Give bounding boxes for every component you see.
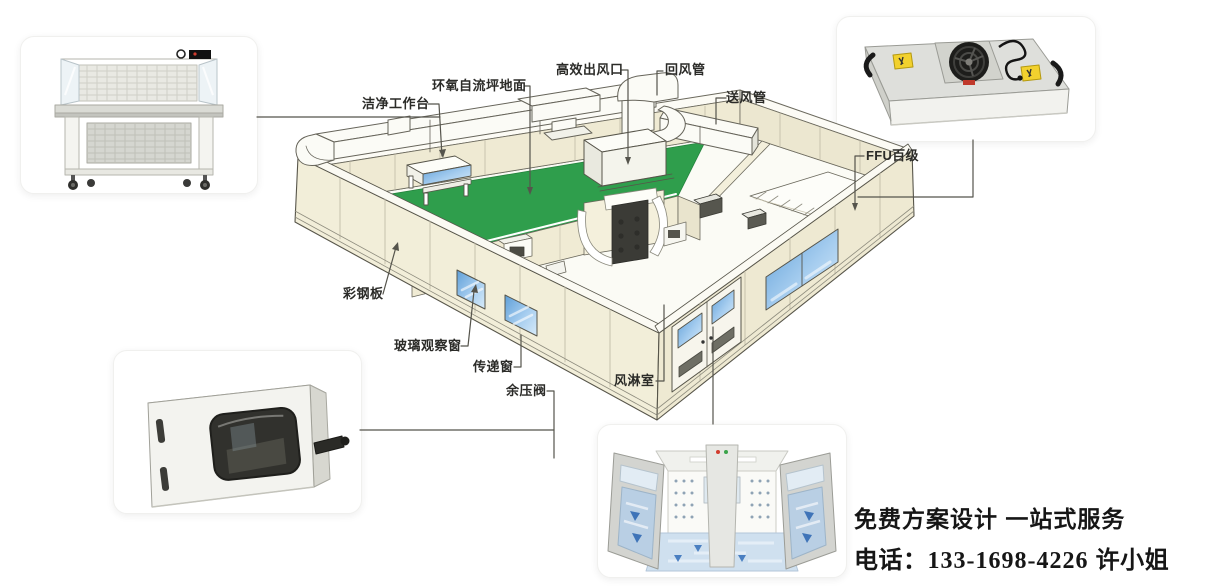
callout-pass-window: 传递窗 [473, 360, 514, 374]
observation-windows [457, 270, 537, 336]
epoxy-green-floor [385, 142, 705, 262]
callout-pressure-valve: 余压阀 [506, 384, 547, 398]
return-duct-elbow [618, 73, 678, 102]
callout-epoxy-floor: 环氧自流坪地面 [432, 79, 527, 93]
leader-hepa-outlet [622, 70, 628, 158]
caster-wheels [68, 175, 210, 190]
air-shower-double-door [672, 277, 741, 392]
callout-ffu-class100: FFU百级 [866, 149, 919, 163]
leader-observation-window [461, 291, 474, 346]
cleanroom-solution-poster: 环氧自流坪地面 洁净工作台 高效出风口 回风管 送风管 FFU百级 彩钢板 玻璃… [0, 0, 1206, 587]
leader-return-duct [657, 71, 663, 95]
pass-box-photo [113, 350, 362, 514]
small-duct-front [532, 95, 600, 122]
leader-steel-panel [383, 247, 396, 294]
phone-number: 133-1698-4226 [928, 548, 1089, 574]
air-shower-room [578, 188, 686, 266]
supply-duct-top [660, 108, 758, 138]
riser-duct [622, 95, 654, 135]
duct-elbow-left [296, 134, 334, 165]
right-door [780, 453, 836, 569]
viewing-window [209, 407, 301, 482]
duct-stub [388, 116, 410, 135]
leader-arrowheads [392, 149, 858, 293]
callout-steel-panel: 彩钢板 [343, 287, 384, 301]
clean-workbench-illustration [21, 37, 257, 193]
contact-person: 许小姐 [1096, 547, 1170, 574]
ffu-ceiling [750, 172, 912, 226]
service-slogan: 免费方案设计 一站式服务 [854, 500, 1169, 534]
callout-return-duct: 回风管 [665, 63, 706, 77]
clean-workbench-photo [20, 36, 258, 194]
leader-ffu [855, 156, 864, 204]
leader-pass-window [514, 335, 521, 367]
air-shower-photo [597, 424, 847, 578]
hepa-outlet-box [584, 129, 674, 191]
callout-hepa-outlet: 高效出风口 [556, 63, 624, 77]
phone-label: 电话： [854, 547, 928, 574]
clean-workbench-iso [407, 156, 471, 205]
callout-air-shower: 风淋室 [614, 374, 655, 388]
interior-partitions [410, 141, 770, 297]
left-door [608, 453, 664, 569]
callout-supply-duct: 送风管 [726, 91, 767, 105]
leader-clean-bench [428, 104, 442, 156]
callout-observation-window: 玻璃观察窗 [394, 339, 462, 353]
small-duct-top [518, 88, 600, 106]
phone-line: 电话：133-1698-4226 许小姐 [854, 540, 1169, 575]
large-window [766, 229, 838, 310]
callout-clean-workbench: 洁净工作台 [362, 97, 430, 111]
duct-branch-curve [641, 106, 685, 146]
air-shower-illustration [598, 425, 846, 577]
supply-duct-front [660, 118, 752, 155]
ffu-unit-photo [836, 16, 1096, 142]
wall-devices [498, 194, 766, 277]
leader-pressure-valve [547, 391, 554, 458]
pass-box-illustration [114, 351, 361, 513]
leader-air-shower [656, 305, 664, 381]
leader-supply-duct [716, 98, 726, 124]
leader-epoxy-floor [524, 86, 530, 188]
ffu-illustration [837, 17, 1095, 141]
air-ducts [296, 73, 758, 166]
pass-window-box [540, 283, 580, 319]
contact-block: 免费方案设计 一站式服务 电话：133-1698-4226 许小姐 [854, 500, 1169, 575]
interior-floor [308, 134, 905, 333]
front-right-wall [655, 144, 914, 420]
